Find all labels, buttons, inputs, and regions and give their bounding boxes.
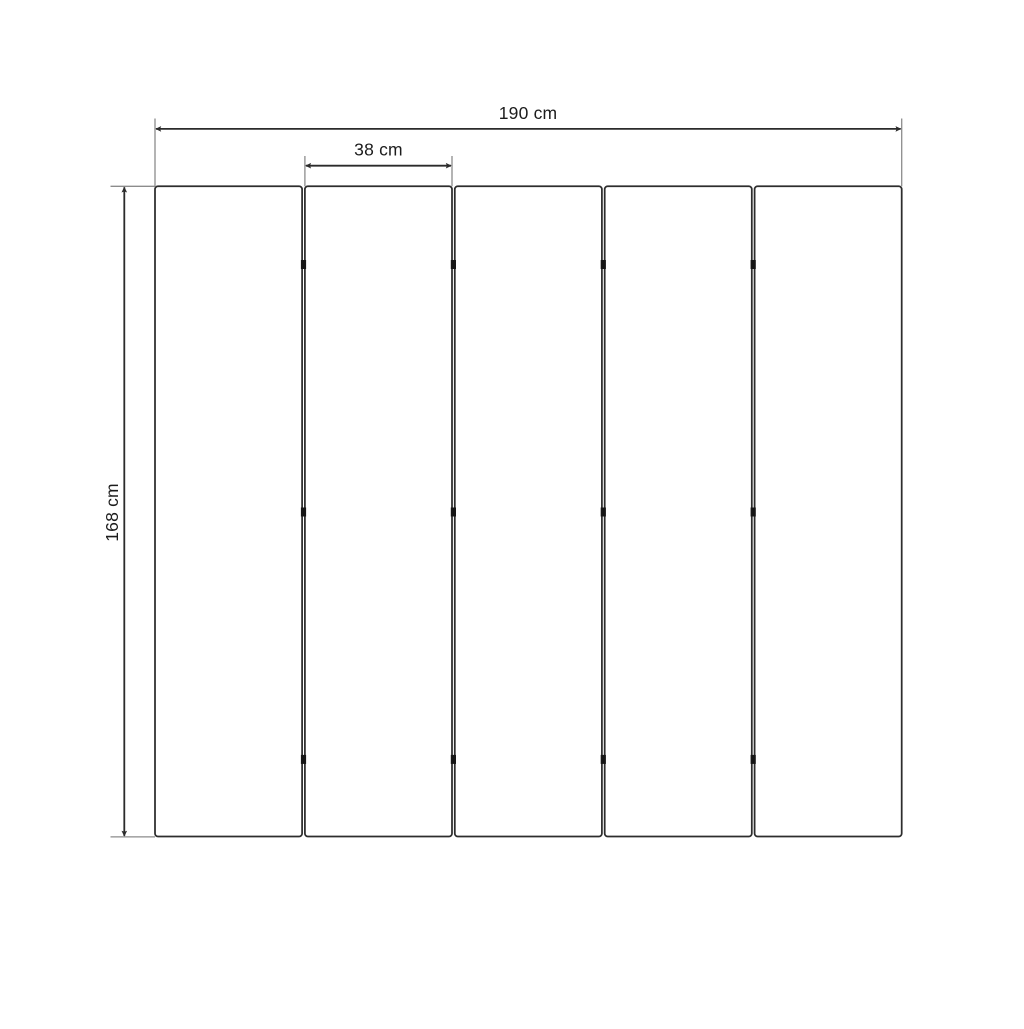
svg-text:168 cm: 168 cm [102, 483, 122, 542]
svg-text:190 cm: 190 cm [499, 103, 558, 123]
svg-text:38 cm: 38 cm [354, 139, 403, 159]
